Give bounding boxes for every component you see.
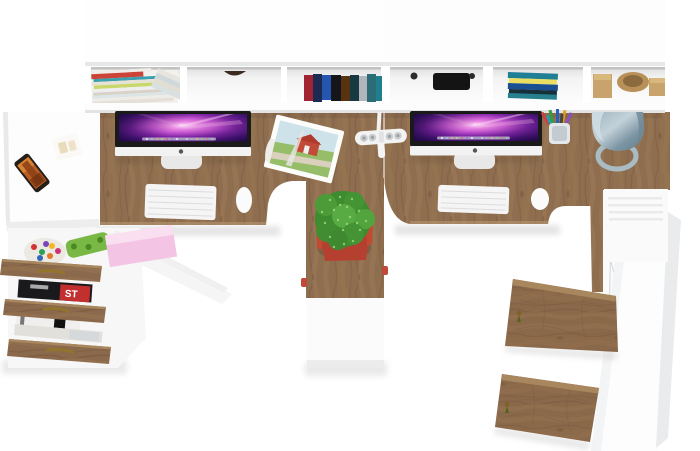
svg-text:ST: ST [64,289,78,301]
